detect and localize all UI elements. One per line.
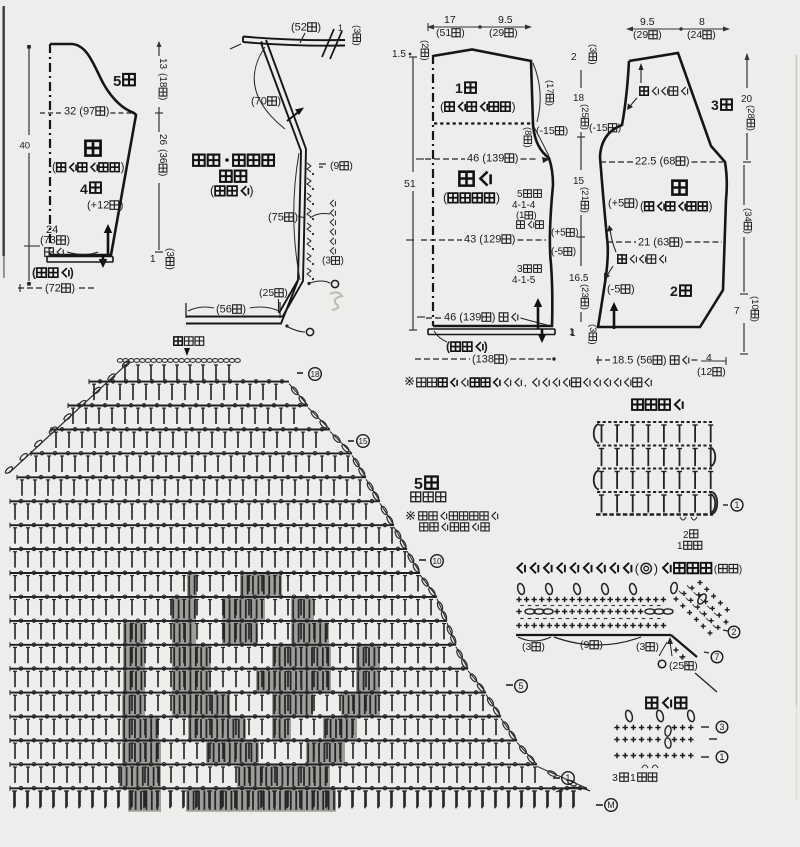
svg-text:(3: (3 xyxy=(636,641,645,653)
svg-text:): ) xyxy=(658,29,662,41)
svg-text:(29: (29 xyxy=(633,29,648,41)
svg-text:): ) xyxy=(655,641,659,653)
svg-text:(34: (34 xyxy=(742,208,753,222)
svg-text:): ) xyxy=(514,27,518,39)
svg-text:(3: (3 xyxy=(322,256,331,267)
svg-text:(3: (3 xyxy=(587,44,598,52)
svg-text:5: 5 xyxy=(113,73,121,90)
svg-text:(24: (24 xyxy=(687,29,702,41)
svg-text:): ) xyxy=(70,265,74,279)
svg-text:): ) xyxy=(575,228,578,239)
svg-text:43 (129: 43 (129 xyxy=(464,234,501,246)
svg-text:4-1-5: 4-1-5 xyxy=(512,275,536,286)
svg-text:1: 1 xyxy=(720,752,725,762)
svg-text:(23: (23 xyxy=(579,284,590,298)
svg-text:): ) xyxy=(317,22,321,34)
svg-text:): ) xyxy=(515,153,519,165)
svg-text:): ) xyxy=(635,198,639,210)
svg-text:26: 26 xyxy=(157,134,168,146)
svg-text:(: ( xyxy=(32,265,36,279)
svg-text:18: 18 xyxy=(573,93,585,104)
svg-text:(+12: (+12 xyxy=(87,200,109,212)
svg-text:): ) xyxy=(565,125,569,137)
svg-text:(21: (21 xyxy=(579,187,590,201)
svg-text:): ) xyxy=(505,354,509,366)
svg-text:): ) xyxy=(120,200,124,212)
svg-text:): ) xyxy=(680,237,684,249)
svg-text:(-5: (-5 xyxy=(551,247,564,258)
svg-text:): ) xyxy=(157,173,168,176)
svg-text:): ) xyxy=(587,62,598,65)
svg-text:): ) xyxy=(579,307,590,310)
svg-text:): ) xyxy=(618,122,622,134)
svg-text:18.5 (56: 18.5 (56 xyxy=(612,355,652,367)
svg-text:51: 51 xyxy=(404,178,416,190)
svg-text:): ) xyxy=(512,99,516,113)
svg-text:1: 1 xyxy=(566,773,571,783)
svg-text:(75: (75 xyxy=(268,212,284,224)
svg-text:(52: (52 xyxy=(291,22,307,34)
svg-text:(51: (51 xyxy=(436,27,451,39)
svg-text:(72: (72 xyxy=(45,283,61,295)
svg-text:): ) xyxy=(579,210,590,213)
svg-text:): ) xyxy=(71,283,75,295)
svg-text:1: 1 xyxy=(735,500,740,510)
svg-text:(9: (9 xyxy=(330,160,339,172)
svg-text:(-5: (-5 xyxy=(607,284,620,296)
svg-text:(25: (25 xyxy=(579,104,590,118)
svg-text:3: 3 xyxy=(517,264,523,275)
svg-text:5: 5 xyxy=(414,476,423,493)
svg-text:(56: (56 xyxy=(216,304,232,316)
svg-text:(25: (25 xyxy=(259,287,274,299)
svg-text:7: 7 xyxy=(715,652,720,662)
svg-text:): ) xyxy=(573,247,576,258)
svg-text:46 (139: 46 (139 xyxy=(444,312,481,324)
svg-text:(: ( xyxy=(640,201,644,213)
svg-text:): ) xyxy=(749,319,760,322)
svg-text:): ) xyxy=(157,97,168,100)
svg-text:): ) xyxy=(686,156,690,168)
svg-text:(9: (9 xyxy=(580,639,589,651)
svg-text:4: 4 xyxy=(80,181,88,197)
svg-text:): ) xyxy=(121,162,125,174)
svg-text:22.5 (68: 22.5 (68 xyxy=(635,156,675,168)
svg-text:): ) xyxy=(349,160,353,172)
svg-text:,: , xyxy=(524,377,527,389)
svg-text:(3: (3 xyxy=(351,25,362,33)
svg-text:): ) xyxy=(242,304,246,316)
svg-text:): ) xyxy=(284,287,288,299)
svg-text:): ) xyxy=(663,355,667,367)
svg-text:13: 13 xyxy=(157,58,168,70)
svg-text:): ) xyxy=(722,366,726,378)
svg-text:(1: (1 xyxy=(516,210,524,221)
svg-text:): ) xyxy=(492,312,496,324)
svg-text:1.5: 1.5 xyxy=(392,49,406,60)
svg-text:(-15: (-15 xyxy=(589,122,608,134)
svg-text:2: 2 xyxy=(732,627,737,637)
svg-text:): ) xyxy=(512,234,516,246)
svg-text:10: 10 xyxy=(432,557,442,566)
svg-text:9.5: 9.5 xyxy=(498,14,513,26)
svg-text:(10: (10 xyxy=(749,296,760,310)
svg-text:): ) xyxy=(631,284,635,296)
svg-text:46 (139: 46 (139 xyxy=(467,153,504,165)
svg-text:9.5: 9.5 xyxy=(640,16,655,28)
svg-text:18: 18 xyxy=(310,370,320,379)
svg-text:): ) xyxy=(351,43,362,46)
svg-text:): ) xyxy=(742,231,753,234)
svg-text:(3: (3 xyxy=(164,248,175,257)
svg-text:(12: (12 xyxy=(697,366,712,378)
svg-text:(138: (138 xyxy=(472,354,494,366)
svg-text:(: ( xyxy=(440,99,444,113)
svg-text:): ) xyxy=(294,212,298,224)
svg-text:(73: (73 xyxy=(40,235,56,247)
svg-text:): ) xyxy=(522,145,533,148)
svg-text:): ) xyxy=(599,639,603,651)
svg-text:(25: (25 xyxy=(669,660,684,672)
svg-text:1: 1 xyxy=(677,541,683,552)
svg-text:40: 40 xyxy=(20,141,31,152)
svg-text:): ) xyxy=(534,210,537,221)
svg-text:32 (97: 32 (97 xyxy=(64,106,95,118)
svg-text:): ) xyxy=(419,58,430,61)
svg-text:): ) xyxy=(745,128,756,131)
svg-text:(70: (70 xyxy=(251,96,267,108)
svg-text:): ) xyxy=(341,256,344,267)
svg-text:17: 17 xyxy=(444,14,456,26)
svg-text:1: 1 xyxy=(455,80,463,96)
svg-text:): ) xyxy=(106,106,110,118)
svg-text:5: 5 xyxy=(519,681,524,691)
svg-text:7: 7 xyxy=(734,306,740,317)
svg-text:): ) xyxy=(739,565,742,576)
svg-text:8: 8 xyxy=(699,16,705,28)
svg-text:(: ( xyxy=(52,162,56,174)
svg-text:M: M xyxy=(607,800,614,810)
svg-text:(3: (3 xyxy=(587,324,598,332)
svg-text:3: 3 xyxy=(711,97,719,113)
svg-text:): ) xyxy=(164,267,175,270)
svg-text:): ) xyxy=(694,660,698,672)
svg-text:(29: (29 xyxy=(489,27,504,39)
svg-text:2: 2 xyxy=(683,530,689,541)
svg-text:(3: (3 xyxy=(522,641,531,653)
svg-text:(36: (36 xyxy=(157,149,168,164)
svg-text:5: 5 xyxy=(517,189,523,200)
svg-text:1: 1 xyxy=(150,254,156,265)
svg-text:): ) xyxy=(461,27,465,39)
svg-text:(+5: (+5 xyxy=(551,228,566,239)
svg-text:(17: (17 xyxy=(544,80,555,94)
svg-text:): ) xyxy=(712,29,716,41)
svg-text:(8: (8 xyxy=(522,127,533,135)
svg-text:1: 1 xyxy=(338,23,343,33)
svg-text:): ) xyxy=(709,201,713,213)
svg-text:): ) xyxy=(544,103,555,106)
svg-text:): ) xyxy=(541,641,545,653)
svg-text:4: 4 xyxy=(706,352,712,364)
svg-text:(18: (18 xyxy=(157,73,168,88)
svg-text:3: 3 xyxy=(720,722,725,732)
svg-text:20: 20 xyxy=(741,94,753,105)
svg-text:21 (63: 21 (63 xyxy=(638,237,669,249)
svg-text:(2: (2 xyxy=(419,40,430,48)
svg-text:): ) xyxy=(249,184,253,198)
svg-text:1: 1 xyxy=(630,772,636,784)
svg-text:): ) xyxy=(66,235,70,247)
svg-text:16.5: 16.5 xyxy=(569,273,589,284)
svg-text:2: 2 xyxy=(670,283,678,299)
svg-text:): ) xyxy=(654,561,658,576)
svg-text:(28: (28 xyxy=(745,105,756,119)
svg-text:2: 2 xyxy=(571,52,577,63)
svg-text:): ) xyxy=(587,342,598,345)
svg-text:3: 3 xyxy=(612,772,618,784)
svg-text:): ) xyxy=(496,191,500,205)
svg-text:): ) xyxy=(484,339,488,353)
svg-text:(+5: (+5 xyxy=(608,198,624,210)
svg-text:15: 15 xyxy=(358,437,368,446)
svg-text:15: 15 xyxy=(573,176,585,187)
svg-text:(: ( xyxy=(635,561,640,576)
svg-text:1: 1 xyxy=(569,327,575,338)
svg-text:): ) xyxy=(277,96,281,108)
